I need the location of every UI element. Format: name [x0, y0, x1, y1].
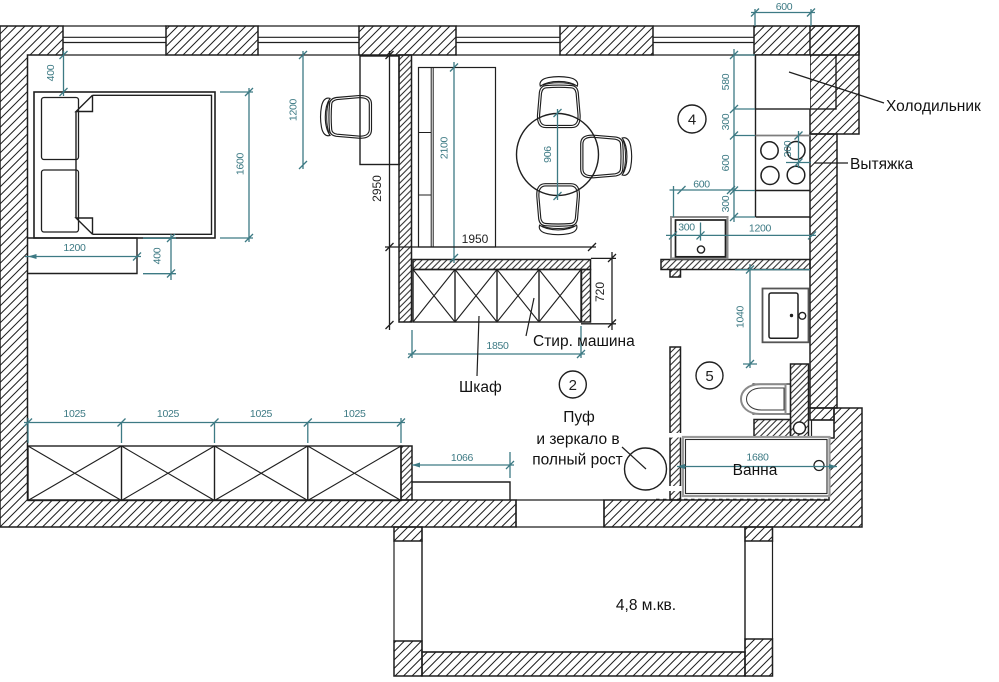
svg-text:300: 300: [720, 113, 732, 130]
svg-text:1200: 1200: [63, 242, 86, 254]
svg-text:1850: 1850: [486, 340, 509, 352]
svg-text:600: 600: [693, 179, 710, 191]
svg-text:1600: 1600: [235, 152, 247, 175]
svg-text:полный рост: полный рост: [532, 452, 622, 469]
svg-text:300: 300: [782, 140, 794, 157]
svg-text:5: 5: [705, 368, 713, 385]
svg-text:1200: 1200: [288, 98, 300, 121]
svg-text:1025: 1025: [63, 408, 86, 420]
svg-text:Ванна: Ванна: [733, 462, 778, 479]
svg-text:2: 2: [569, 377, 577, 394]
svg-text:400: 400: [152, 247, 164, 264]
svg-text:Стир. машина: Стир. машина: [533, 333, 635, 350]
svg-text:300: 300: [678, 222, 695, 234]
svg-text:2950: 2950: [370, 175, 384, 202]
svg-text:Вытяжка: Вытяжка: [850, 156, 913, 173]
svg-text:1025: 1025: [343, 408, 366, 420]
svg-text:1025: 1025: [157, 408, 180, 420]
svg-text:1200: 1200: [749, 223, 772, 235]
svg-text:400: 400: [45, 64, 57, 81]
svg-text:580: 580: [720, 73, 732, 90]
svg-text:4,8 м.кв.: 4,8 м.кв.: [616, 597, 676, 614]
svg-text:600: 600: [720, 154, 732, 171]
svg-text:Пуф: Пуф: [563, 409, 595, 426]
svg-text:и зеркало в: и зеркало в: [536, 431, 619, 448]
svg-text:4: 4: [688, 112, 696, 129]
svg-text:1040: 1040: [735, 305, 747, 328]
svg-text:Холодильник: Холодильник: [886, 98, 981, 115]
svg-text:Шкаф: Шкаф: [459, 379, 502, 396]
svg-text:1950: 1950: [462, 232, 489, 246]
svg-text:1066: 1066: [451, 452, 474, 464]
svg-text:2100: 2100: [439, 136, 451, 159]
svg-text:720: 720: [593, 282, 607, 302]
svg-text:906: 906: [542, 146, 554, 163]
svg-text:1025: 1025: [250, 408, 273, 420]
svg-text:600: 600: [776, 1, 793, 13]
svg-text:300: 300: [720, 195, 732, 212]
